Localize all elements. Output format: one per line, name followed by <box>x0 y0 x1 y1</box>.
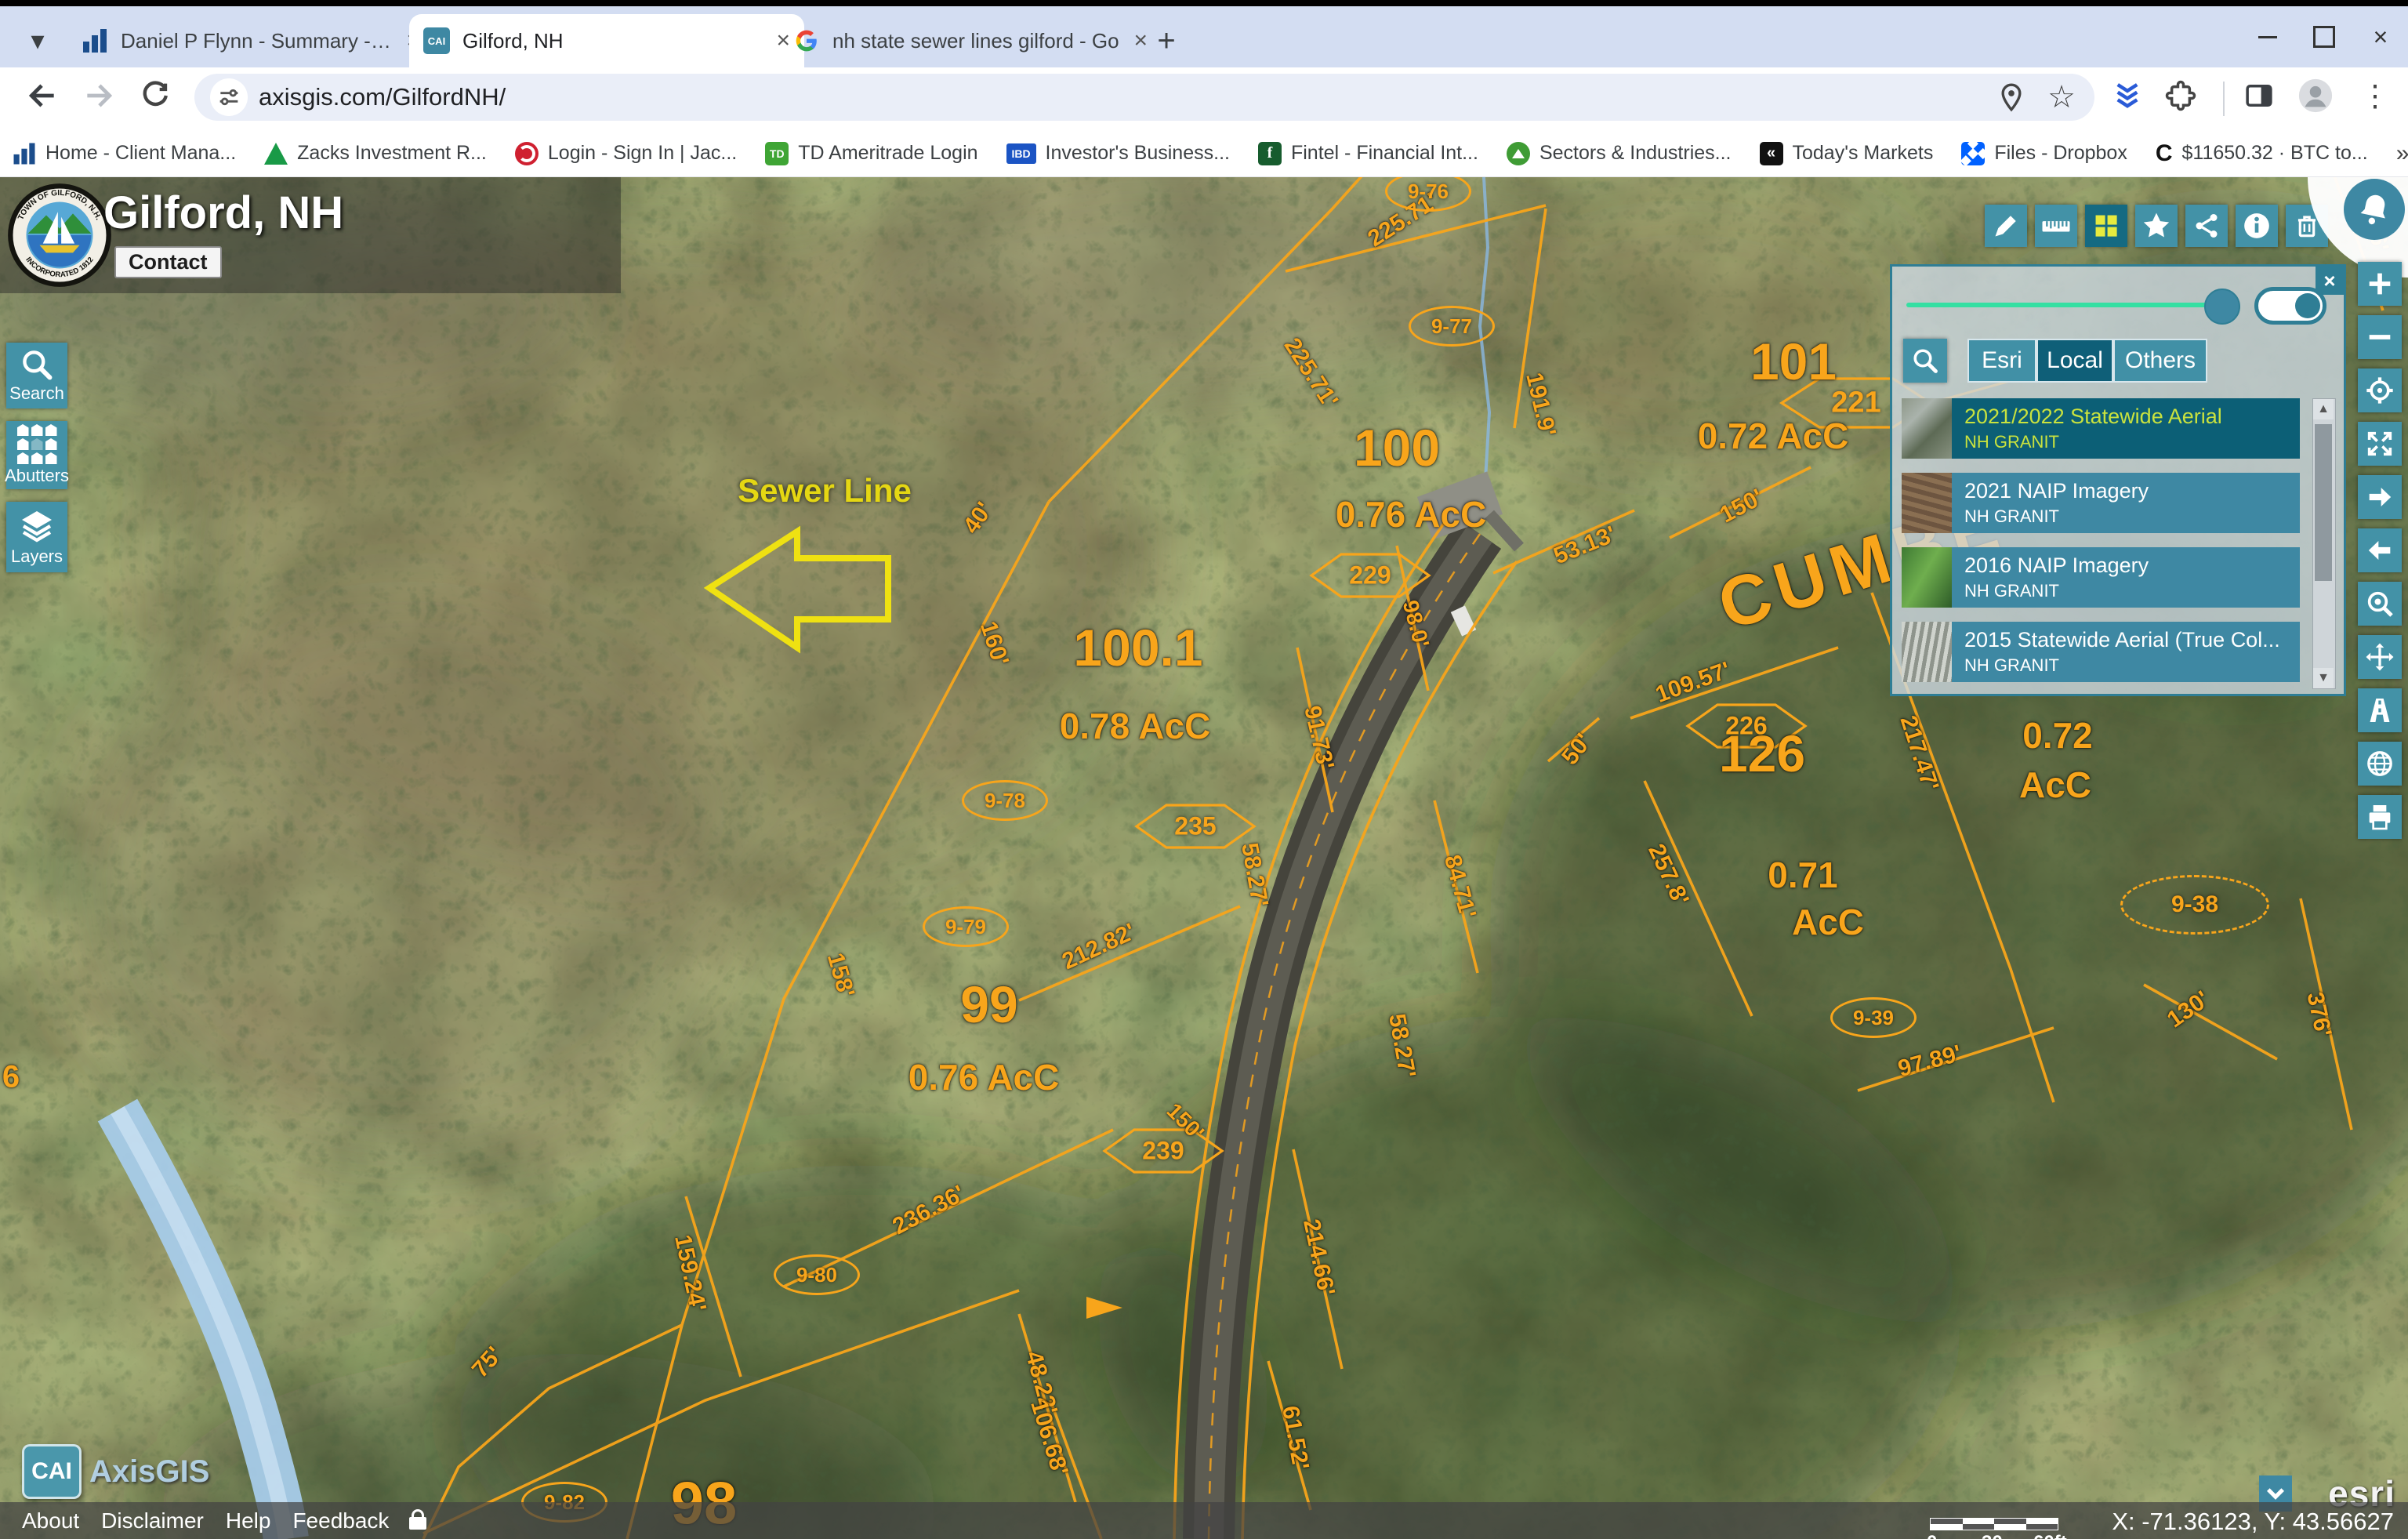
bookmarks-overflow-icon[interactable]: » <box>2396 140 2408 167</box>
acreage-label: 0.78 AcC <box>1060 705 1211 747</box>
next-extent-button[interactable] <box>2358 475 2402 519</box>
cai-favicon: CAI <box>423 27 450 54</box>
reload-button[interactable] <box>135 75 176 116</box>
acreage-label: AcC <box>2019 764 2091 806</box>
identify-button[interactable] <box>2236 205 2278 247</box>
plus-icon: + <box>1157 24 1175 59</box>
tab-strip: ▾ Daniel P Flynn - Summary - Clie × CAI … <box>0 6 2408 67</box>
bookmark-btc[interactable]: C$11650.32 · BTC to... <box>2156 140 2368 167</box>
zacks-icon <box>264 143 288 165</box>
bookmark-td[interactable]: TDTD Ameritrade Login <box>765 142 977 165</box>
feature-oval: 9-80 <box>774 1254 860 1295</box>
panel-scrollbar[interactable]: ▲ ▼ <box>2312 398 2336 689</box>
about-link[interactable]: About <box>22 1508 79 1534</box>
previous-extent-button[interactable] <box>2358 528 2402 572</box>
print-button[interactable] <box>2358 795 2402 839</box>
sidebar-item-layers[interactable]: Layers <box>6 502 67 572</box>
feature-oval: 9-77 <box>1409 306 1495 347</box>
ruler-icon <box>2040 210 2072 241</box>
abutters-icon <box>17 424 57 464</box>
bookmark-star-icon[interactable]: ☆ <box>2047 79 2076 115</box>
minimize-icon <box>2258 36 2277 38</box>
street-number: 235 <box>1174 812 1216 841</box>
chevron-down-icon: ▾ <box>31 25 44 56</box>
opacity-slider-track[interactable] <box>1906 303 2229 307</box>
share-icon <box>2192 212 2221 240</box>
layers-icon <box>18 507 56 545</box>
draw-button[interactable] <box>1985 205 2027 247</box>
bookmarks-bar: Home - Client Mana... Zacks Investment R… <box>0 130 2408 177</box>
bookmark-zacks[interactable]: Zacks Investment R... <box>264 142 487 165</box>
bell-icon <box>2352 187 2397 232</box>
scale-label: 60ft <box>2033 1532 2067 1539</box>
bookmark-dropbox[interactable]: Files - Dropbox <box>1961 142 2127 165</box>
basemap-item-2021-2022[interactable]: 2021/2022 Statewide AerialNH GRANIT <box>1902 398 2300 459</box>
feature-oval-dashed: 9-38 <box>2120 875 2269 935</box>
scroll-down-arrow[interactable]: ▼ <box>2313 668 2334 688</box>
lot-number: 99 <box>960 975 1017 1034</box>
toolbar-divider <box>2223 82 2225 116</box>
extension-chevrons-icon[interactable] <box>2107 75 2148 116</box>
close-window-button[interactable]: × <box>2353 6 2408 67</box>
address-bar[interactable]: axisgis.com/GilfordNH/ ☆ <box>194 74 2094 121</box>
barchart-icon <box>13 142 36 165</box>
bookmark-login[interactable]: Login - Sign In | Jac... <box>515 142 737 165</box>
crosshair-icon <box>2364 375 2395 406</box>
basemap-item-2021-naip[interactable]: 2021 NAIP ImageryNH GRANIT <box>1902 473 2300 533</box>
opacity-slider-handle[interactable] <box>2204 289 2240 325</box>
pan-button[interactable] <box>2358 635 2402 679</box>
acreage-label: 0.72 AcC <box>1698 415 1849 457</box>
basemap-item-2015-statewide[interactable]: 2015 Statewide Aerial (True Col...NH GRA… <box>1902 622 2300 682</box>
toggle-knob <box>2295 293 2320 318</box>
feature-oval: 9-78 <box>962 780 1048 821</box>
sidebar-item-abutters[interactable]: Abutters <box>6 421 67 489</box>
lot-number: 6 <box>2 1060 20 1095</box>
profile-avatar[interactable] <box>2295 75 2336 116</box>
window-frame <box>0 0 2408 6</box>
location-icon[interactable] <box>1996 82 2027 113</box>
browser-window: ▾ Daniel P Flynn - Summary - Clie × CAI … <box>0 0 2408 1539</box>
share-button[interactable] <box>2185 205 2228 247</box>
measure-button[interactable] <box>2035 205 2077 247</box>
extensions-puzzle-icon[interactable] <box>2160 75 2201 116</box>
sidebar-item-search[interactable]: Search <box>6 343 67 408</box>
basemap-thumbnail <box>1902 398 1952 459</box>
acreage-label: 0.72 <box>2022 714 2093 757</box>
basemap-panel: × Esri Local Others 2021/2022 Statewide … <box>1890 264 2346 696</box>
basemap-thumbnail <box>1902 473 1952 533</box>
bookmark-today[interactable]: «Today's Markets <box>1760 142 1934 165</box>
cai-logo: CAI <box>22 1444 82 1499</box>
acreage-label: 0.71 <box>1768 854 1838 896</box>
menu-dots-icon[interactable]: ⋮ <box>2355 75 2395 116</box>
back-button[interactable] <box>22 75 63 116</box>
sewer-line-label: Sewer Line <box>738 472 912 510</box>
basemap-button[interactable] <box>2085 205 2127 247</box>
maximize-icon <box>2313 26 2335 48</box>
locate-button[interactable] <box>2358 368 2402 412</box>
tab-search-button[interactable]: ▾ <box>17 20 58 61</box>
page-title: Gilford, NH <box>103 187 343 239</box>
lot-number: 101 <box>1750 332 1837 391</box>
scroll-up-arrow[interactable]: ▲ <box>2313 399 2334 419</box>
minimize-button[interactable] <box>2240 6 2295 67</box>
tab-client-summary[interactable]: Daniel P Flynn - Summary - Clie × <box>67 14 434 67</box>
url-text[interactable]: axisgis.com/GilfordNH/ <box>259 83 506 111</box>
tab-esri[interactable]: Esri <box>1967 339 2036 383</box>
bookmark-sectors[interactable]: Sectors & Industries... <box>1507 142 1732 165</box>
coinbase-icon: C <box>2156 140 2173 167</box>
dropbox-icon <box>1961 142 1985 165</box>
feature-oval: 9-39 <box>1830 997 1917 1038</box>
basemap-item-2016-naip[interactable]: 2016 NAIP ImageryNH GRANIT <box>1902 547 2300 608</box>
lot-number: 100 <box>1354 418 1440 477</box>
help-link[interactable]: Help <box>226 1508 271 1534</box>
star-icon <box>2141 210 2172 241</box>
barchart-favicon <box>82 27 108 54</box>
basemap-tabs: Esri Local Others <box>1967 339 2207 383</box>
magnifier-icon <box>2364 588 2395 619</box>
search-icon <box>1911 347 1939 375</box>
street-number: 221 <box>1831 387 1880 420</box>
lot-number: 100.1 <box>1073 618 1202 677</box>
close-icon: × <box>2374 23 2388 52</box>
pan-icon <box>2364 641 2395 673</box>
overview-button[interactable] <box>2358 742 2402 786</box>
td-icon: TD <box>765 142 789 165</box>
arrow-left-icon <box>2364 535 2395 566</box>
axisgis-logo: AxisGIS <box>89 1454 209 1490</box>
maximize-button[interactable] <box>2297 6 2352 67</box>
coordinates-readout: X: -71.36123, Y: 43.56627 <box>2112 1508 2394 1536</box>
street-number: 226 <box>1725 712 1767 741</box>
forward-button[interactable] <box>78 75 119 116</box>
fullscreen-button[interactable] <box>2358 422 2402 466</box>
basemap-thumbnail <box>1902 547 1952 608</box>
zoom-out-button[interactable] <box>2358 315 2402 359</box>
google-favicon <box>793 27 820 54</box>
side-panel-icon[interactable] <box>2239 75 2279 116</box>
road-icon <box>2364 695 2395 726</box>
ibd-icon: IBD <box>1006 143 1036 164</box>
street-number: 229 <box>1349 561 1391 590</box>
street-number: 239 <box>1142 1137 1184 1166</box>
scrollbar-thumb[interactable] <box>2315 424 2332 581</box>
info-icon <box>2241 210 2272 241</box>
search-icon <box>20 347 54 382</box>
bookmark-home[interactable]: Home - Client Mana... <box>13 142 236 165</box>
fidelity-icon <box>1507 142 1530 165</box>
fintel-icon: f <box>1258 142 1282 165</box>
tab-title: Gilford, NH <box>462 29 765 53</box>
tab-gilford-active[interactable]: CAI Gilford, NH × <box>409 14 804 67</box>
layer-toggle[interactable] <box>2254 287 2326 325</box>
lock-icon <box>409 1517 426 1530</box>
globe-icon <box>2364 748 2395 779</box>
disclaimer-link[interactable]: Disclaimer <box>101 1508 204 1534</box>
tab-local[interactable]: Local <box>2036 339 2113 383</box>
contact-button[interactable]: Contact <box>114 246 222 278</box>
feature-oval: 9-79 <box>923 906 1009 947</box>
zoom-selection-button[interactable] <box>2358 582 2402 626</box>
scale-label: 30 <box>1982 1532 2003 1539</box>
arrow-right-icon <box>2364 481 2395 513</box>
bookmarks-map-button[interactable] <box>2135 205 2178 247</box>
expand-icon <box>2364 428 2395 459</box>
tab-google-search[interactable]: nh state sewer lines gilford - Go × <box>779 14 1162 67</box>
pencil-icon <box>1992 212 2020 240</box>
site-settings-icon[interactable] <box>210 78 248 116</box>
basemap-search-button[interactable] <box>1903 339 1947 383</box>
plus-icon <box>2364 268 2395 299</box>
basemap-grid-icon <box>2091 211 2121 241</box>
acreage-label: AcC <box>1792 901 1864 943</box>
tab-others[interactable]: Others <box>2113 339 2207 383</box>
tab-title: Daniel P Flynn - Summary - Clie <box>121 29 395 53</box>
map-viewport[interactable]: 225.71' 94.6' 225.71' 191.9' 101 0.72 Ac… <box>0 177 2408 1539</box>
tab-title: nh state sewer lines gilford - Go <box>832 29 1122 53</box>
scale-label: 0 <box>1927 1532 1937 1539</box>
bookmark-fintel[interactable]: fFintel - Financial Int... <box>1258 142 1478 165</box>
acreage-label: 0.76 AcC <box>1336 493 1487 535</box>
basemap-thumbnail <box>1902 622 1952 682</box>
jackson-icon <box>515 142 539 165</box>
acreage-label: 0.76 AcC <box>908 1056 1060 1098</box>
new-tab-button[interactable]: + <box>1146 20 1187 61</box>
printer-icon <box>2364 801 2395 833</box>
markets-icon: « <box>1760 142 1783 165</box>
town-seal: TOWN OF GILFORD, N.H. INCORPORATED 1812 <box>6 182 113 292</box>
zoom-in-button[interactable] <box>2358 262 2402 306</box>
minus-icon <box>2364 321 2395 353</box>
feedback-link[interactable]: Feedback <box>292 1508 389 1534</box>
scale-bar: 0 30 60ft <box>1930 1518 2058 1539</box>
streets-button[interactable] <box>2358 688 2402 732</box>
cai-axisgis-logo: CAI AxisGIS <box>22 1444 209 1499</box>
bookmark-ibd[interactable]: IBDInvestor's Business... <box>1006 142 1230 165</box>
